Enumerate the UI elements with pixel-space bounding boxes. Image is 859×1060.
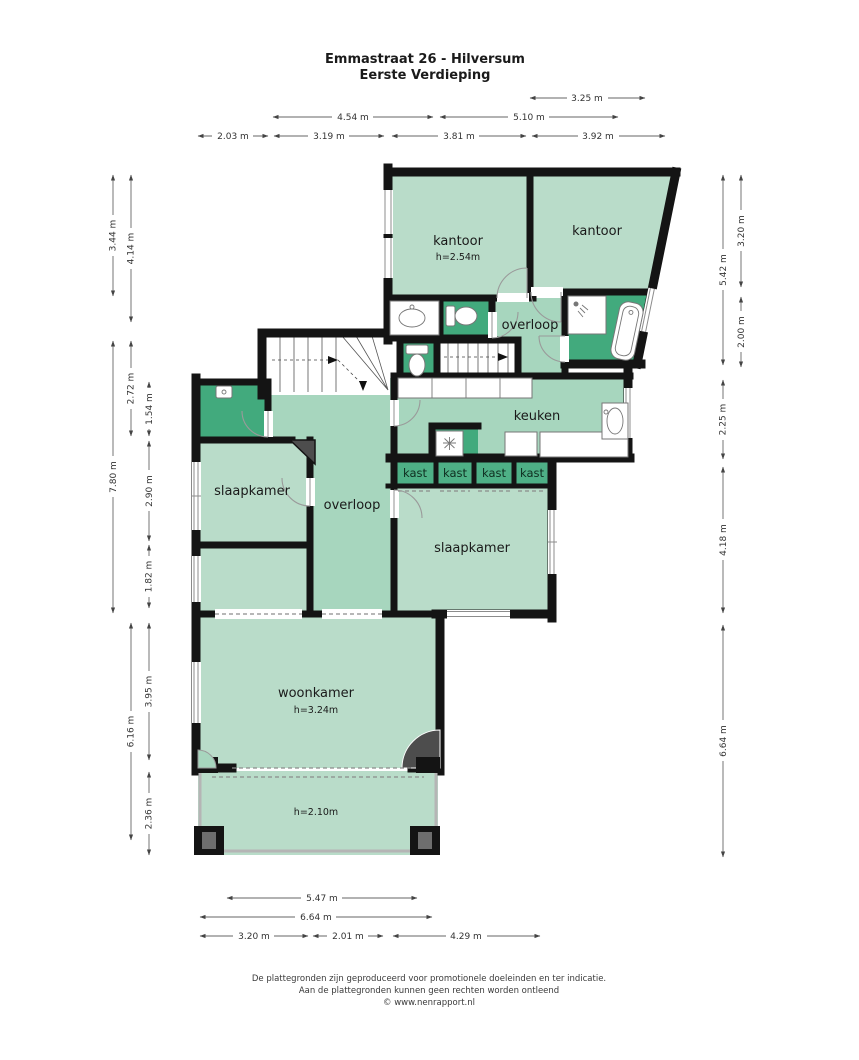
stairs-upper [437,340,518,376]
svg-text:1.82 m: 1.82 m [145,561,155,593]
svg-text:6.64 m: 6.64 m [300,913,332,923]
dim: 3.95 m [144,623,155,760]
dim: 5.47 m [227,893,417,905]
dim: 3.20 m [200,931,308,943]
floorplan-page: Emmastraat 26 - Hilversum Eerste Verdiep… [0,0,859,1060]
svg-text:6.64 m: 6.64 m [719,725,729,757]
dim: 6.16 m [126,623,137,840]
dim: 2.25 m [718,380,729,459]
svg-text:5.47 m: 5.47 m [306,894,338,904]
dim: 7.80 m [108,341,120,613]
dim: 2.36 m [144,772,155,855]
dimensions-top: 3.25 m 4.54 m 5.10 m 2.03 m 3.19 m 3.81 … [198,93,665,143]
svg-text:4.29 m: 4.29 m [450,932,482,942]
svg-text:3.25 m: 3.25 m [571,94,603,104]
svg-text:4.14 m: 4.14 m [127,233,137,265]
svg-text:7.80 m: 7.80 m [109,461,119,493]
sink-counter [390,301,439,335]
dim: 4.18 m [718,467,730,613]
label-kantoor-left: kantoor [433,234,484,249]
dim: 3.44 m [108,175,119,296]
svg-text:3.19 m: 3.19 m [313,132,345,142]
page-title: Emmastraat 26 - Hilversum Eerste Verdiep… [325,52,525,83]
svg-text:2.01 m: 2.01 m [332,932,364,942]
svg-text:5.10 m: 5.10 m [513,113,545,123]
balcony-post [416,757,440,773]
svg-text:2.00 m: 2.00 m [737,316,747,348]
dim: 3.81 m [392,131,526,143]
label-slaapkamer-left: slaapkamer [214,484,290,499]
svg-text:3.20 m: 3.20 m [737,215,747,247]
dim: 3.19 m [274,131,384,143]
dim: 3.20 m [736,175,748,287]
svg-text:6.16 m: 6.16 m [127,716,137,748]
dim: 5.10 m [440,112,618,124]
footer-line2: Aan de plattegronden kunnen geen rechten… [299,986,559,996]
label-balkon-height: h=2.10m [294,807,338,818]
dim: 2.01 m [313,931,383,943]
dim: 5.42 m [718,175,730,365]
room-below-left [196,545,310,614]
dim: 6.64 m [200,912,432,924]
label-slaapkamer-right: slaapkamer [434,541,510,556]
dim: 4.29 m [393,931,540,943]
label-kantoor-left-height: h=2.54m [436,252,480,263]
dim: 1.54 m [144,382,156,436]
title-line1: Emmastraat 26 - Hilversum [325,52,525,67]
dim: 6.64 m [718,625,730,857]
dimensions-left: 3.44 m 4.14 m 2.72 m 1.54 m 7.80 m 2.90 … [108,175,156,855]
label-kast-3: kast [482,466,506,480]
toilet-icon [446,306,477,326]
label-kantoor-right: kantoor [572,224,623,239]
svg-text:3.20 m: 3.20 m [238,932,270,942]
fountain-sink-icon [216,386,232,398]
shower-icon [568,296,606,334]
dim: 2.72 m [126,341,137,436]
floorplan-canvas: Emmastraat 26 - Hilversum Eerste Verdiep… [0,0,859,1060]
stairs-main [262,333,390,395]
label-kast-4: kast [520,466,544,480]
dim: 2.03 m [198,131,268,143]
dim: 3.92 m [532,131,665,143]
dim: 2.90 m [144,441,156,541]
svg-text:2.36 m: 2.36 m [145,798,155,830]
footer-line1: De plattegronden zijn geproduceerd voor … [252,974,606,984]
dim: 4.54 m [273,112,433,124]
svg-text:2.90 m: 2.90 m [145,475,155,507]
svg-text:2.72 m: 2.72 m [127,373,137,405]
dimensions-right: 5.42 m 3.20 m 2.00 m 2.25 m 4.18 m 6.64 … [718,175,748,857]
svg-text:4.18 m: 4.18 m [719,524,729,556]
label-overloop-main: overloop [324,498,381,513]
dimensions-bottom: 5.47 m 6.64 m 3.20 m 2.01 m 4.29 m [200,893,540,943]
label-keuken: keuken [514,409,561,424]
svg-text:3.92 m: 3.92 m [582,132,614,142]
svg-text:3.95 m: 3.95 m [145,676,155,708]
svg-text:3.44 m: 3.44 m [109,220,119,252]
svg-text:4.54 m: 4.54 m [337,113,369,123]
label-woonkamer: woonkamer [278,686,355,701]
label-kast-1: kast [403,466,427,480]
svg-text:2.03 m: 2.03 m [217,132,249,142]
kitchen-sink-icon [602,403,628,439]
svg-text:5.42 m: 5.42 m [719,254,729,286]
title-line2: Eerste Verdieping [360,68,491,83]
svg-text:2.25 m: 2.25 m [719,404,729,436]
dim: 2.00 m [736,297,748,367]
dim: 1.82 m [144,545,155,608]
svg-text:3.81 m: 3.81 m [443,132,475,142]
footer-copyright: © www.nenrapport.nl [383,998,475,1008]
label-overloop-top: overloop [502,318,559,333]
dim: 3.25 m [530,93,645,105]
washing-machine-icon [436,431,463,456]
svg-text:1.54 m: 1.54 m [145,393,155,425]
dim: 4.14 m [126,175,137,322]
label-woonkamer-height: h=3.24m [294,705,338,716]
footer-disclaimer: De plattegronden zijn geproduceerd voor … [252,974,606,1008]
label-kast-2: kast [443,466,467,480]
